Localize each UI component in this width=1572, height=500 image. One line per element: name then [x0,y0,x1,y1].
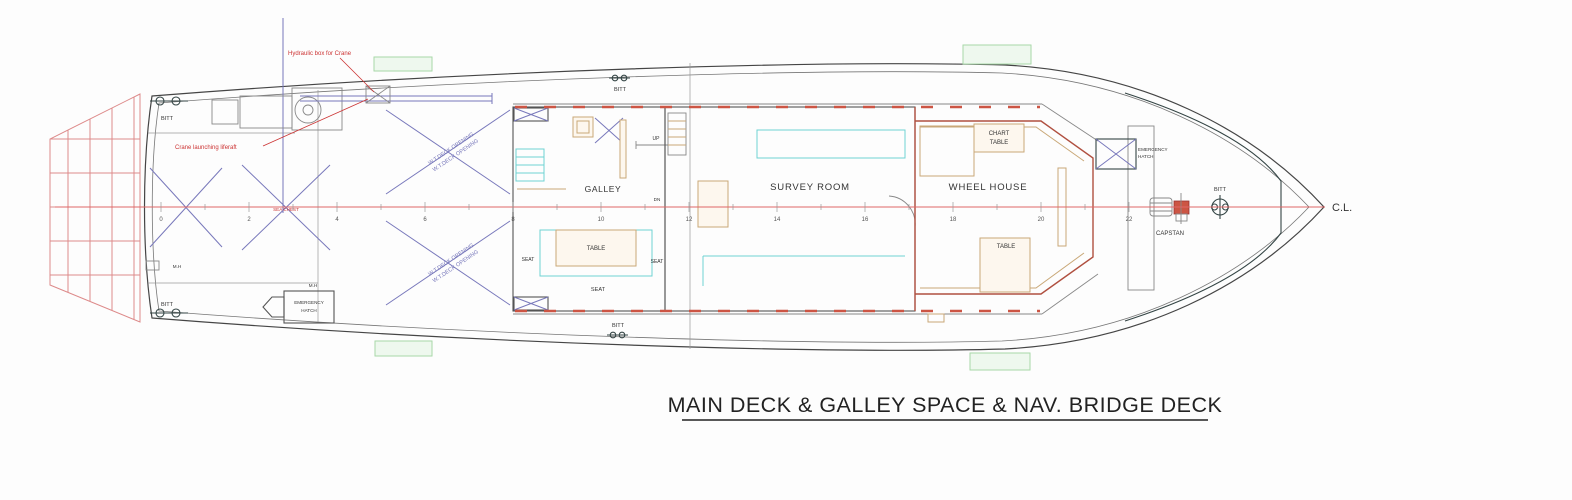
forward-emergency-hatch: EMERGENCY HATCH [1096,126,1168,290]
fwd-emergency-hatch-label-line2: HATCH [1138,154,1153,159]
svg-text:12: 12 [686,217,693,223]
svg-text:8: 8 [511,217,515,223]
svg-text:20: 20 [1038,217,1045,223]
fwd-emergency-hatch-label-line1: EMERGENCY [1138,147,1168,152]
galley-table-label: TABLE [587,246,606,252]
sea-chest-label: SEA CHEST [273,207,299,212]
bitt-mid-bottom: BITT [607,323,628,338]
stern-grid-platform [50,94,140,322]
svg-text:4: 4 [335,217,339,223]
survey-bench-top [757,130,905,158]
galley-room: GALLEY UP DN TABLE SEAT SEAT SEAT [513,107,686,311]
manhole-label: M.H [173,264,181,269]
aft-emergency-hatch-label-line1: EMERGENCY [294,300,324,305]
survey-room-label: SURVEY ROOM [770,182,850,193]
seat-right-label: SEAT [651,259,664,265]
stairs-down-label: DN [654,197,661,202]
brace-x3: W.T.DECK OPENING W.T.DECK OPENING [386,110,510,194]
galley-corner-seat-icon [514,108,548,121]
capstan-label: CAPSTAN [1156,231,1184,237]
svg-text:14: 14 [774,217,781,223]
manhole-label-2: M.H [309,283,317,288]
bitt-stern-top: BITT [150,97,188,122]
deck-plan-canvas: Hydraulic box for Crane Crane launching … [0,0,1572,500]
seat-bottom-label: SEAT [591,287,606,293]
svg-text:22: 22 [1126,217,1133,223]
bitt-mid-top: BITT [609,75,630,93]
stairs-up-icon [668,113,686,155]
drawing-title-text: MAIN DECK & GALLEY SPACE & NAV. BRIDGE D… [668,393,1223,417]
bitt-stern-bottom: BITT [150,302,188,317]
capstan: CAPSTAN [1150,193,1189,237]
stove-icon [573,117,593,137]
wheelhouse-table-label: TABLE [997,244,1016,250]
survey-room: SURVEY ROOM [665,107,915,311]
manhole-stern: M.H [146,261,181,270]
seat-left-label: SEAT [522,257,535,263]
bitt-bow: BITT [1208,187,1232,219]
station-ticks: 0246810121416182022 [159,202,1133,223]
bitt-label: BITT [612,323,625,329]
aft-emergency-hatch-label-line2: HATCH [301,308,316,313]
centerline-label: C.L. [1332,202,1352,214]
door-swing-arc [889,196,915,227]
galley-hatch-icon [595,118,623,143]
deckhouse: GALLEY UP DN TABLE SEAT SEAT SEAT [513,104,1168,322]
galley-corner-seat-icon [514,297,548,310]
svg-text:16: 16 [862,217,869,223]
svg-text:2: 2 [247,217,251,223]
svg-text:18: 18 [950,217,957,223]
bitt-label: BITT [614,87,627,93]
drawing-title: MAIN DECK & GALLEY SPACE & NAV. BRIDGE D… [668,393,1223,420]
crane-assembly: Hydraulic box for Crane Crane launching … [175,18,492,213]
sink-unit-icon [516,149,544,181]
svg-text:10: 10 [598,217,605,223]
galley-label: GALLEY [585,184,622,194]
chart-table-label-line1: CHART [989,131,1010,137]
crane-liferaft-label: Crane launching liferaft [175,145,237,151]
galley-counter-strip [620,120,626,178]
chart-table-label-line2: TABLE [990,140,1009,146]
hydraulic-box-label: Hydraulic box for Crane [288,51,352,57]
wheel-house-label: WHEEL HOUSE [949,182,1028,193]
svg-text:6: 6 [423,217,427,223]
bitt-label: BITT [161,302,174,308]
bitt-label: BITT [161,116,174,122]
survey-console [698,181,728,227]
chart-table [974,124,1024,152]
brace-x4: W.T.DECK OPENING W.T.DECK OPENING [386,221,510,305]
svg-text:0: 0 [159,217,163,223]
stairs-up-label: UP [653,136,661,142]
wheel-house: CHART TABLE WHEEL HOUSE TABLE [915,107,1093,322]
bitt-label: BITT [1214,187,1227,193]
aft-emergency-hatch: EMERGENCY HATCH [263,291,334,323]
deck-plan-drawing: Hydraulic box for Crane Crane launching … [0,0,1572,500]
